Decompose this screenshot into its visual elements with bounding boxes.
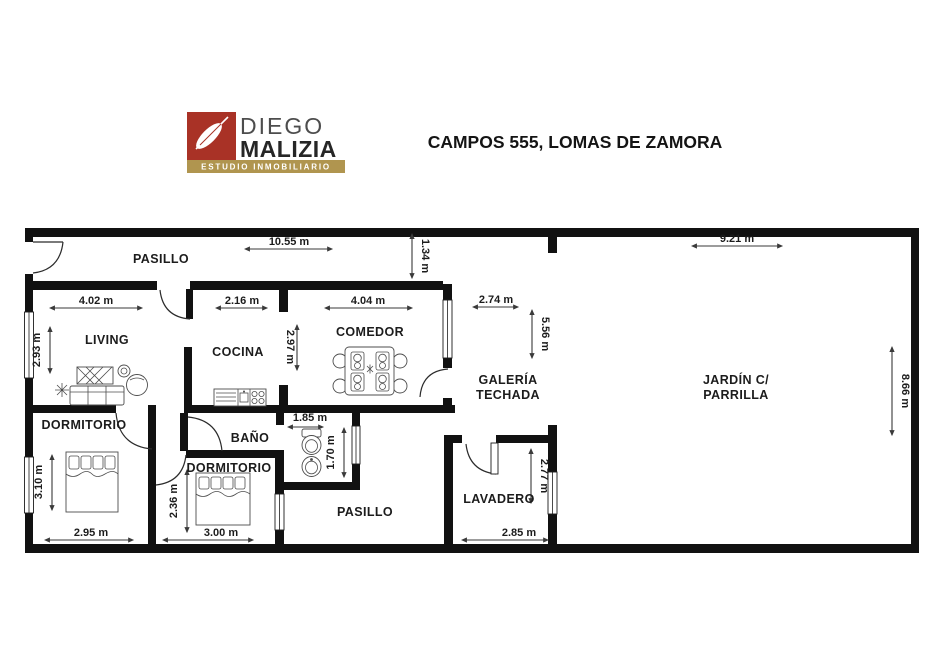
dimension-label: 4.02 m bbox=[79, 295, 113, 307]
room-label-living: LIVING bbox=[85, 333, 129, 347]
sofa bbox=[70, 386, 124, 405]
room-label-jardin-1: JARDÍN C/ bbox=[703, 372, 769, 387]
room-label-lavadero: LAVADERO bbox=[463, 492, 535, 506]
dimension-label: 2.36 m bbox=[168, 484, 180, 518]
dimension-label: 5.56 m bbox=[539, 317, 551, 351]
room-label-bano: BAÑO bbox=[231, 430, 269, 445]
dimension-label: 8.66 m bbox=[899, 374, 911, 408]
dimension-label: 2.97 m bbox=[284, 330, 296, 364]
room-label-pasillo-top: PASILLO bbox=[133, 252, 189, 266]
bed bbox=[196, 473, 250, 525]
dimension-label: 2.93 m bbox=[31, 333, 43, 367]
dimension-label: 1.85 m bbox=[293, 412, 327, 424]
door-arc bbox=[420, 369, 448, 397]
brand-tagline: ESTUDIO INMOBILIARIO bbox=[201, 163, 331, 172]
dimension-label: 1.70 m bbox=[325, 435, 337, 469]
door-arc bbox=[33, 242, 63, 273]
armchair bbox=[127, 375, 148, 396]
room-label-jardin-2: PARRILLA bbox=[703, 388, 768, 402]
bidet bbox=[302, 457, 321, 477]
room-label-dormitorio-1: DORMITORIO bbox=[41, 418, 126, 432]
dimension-label: 2.95 m bbox=[74, 527, 108, 539]
plant bbox=[55, 383, 69, 397]
room-label-comedor: COMEDOR bbox=[336, 325, 404, 339]
dimension-label: 10.55 m bbox=[269, 236, 310, 248]
dimension-label: 9.21 m bbox=[720, 233, 754, 245]
door-arc bbox=[188, 417, 222, 451]
dimension-label: 3.10 m bbox=[33, 465, 45, 499]
page-title: CAMPOS 555, LOMAS DE ZAMORA bbox=[428, 132, 723, 152]
room-label-galeria-2: TECHADA bbox=[476, 388, 540, 402]
door-arc bbox=[466, 443, 498, 474]
rug bbox=[77, 367, 113, 384]
door-arc bbox=[156, 455, 186, 485]
window bbox=[443, 300, 452, 358]
dimension-label: 4.04 m bbox=[351, 295, 385, 307]
dimension-label: 1.34 m bbox=[419, 239, 431, 273]
brand-name-line2: MALIZIA bbox=[240, 136, 337, 162]
toilet bbox=[302, 429, 321, 455]
door-arc bbox=[160, 290, 190, 319]
dimension-label: 2.16 m bbox=[225, 295, 259, 307]
dimension-label: 2.74 m bbox=[479, 294, 513, 306]
doors bbox=[33, 242, 498, 485]
room-label-dormitorio-2: DORMITORIO bbox=[186, 461, 271, 475]
window bbox=[352, 426, 360, 464]
dimension-label: 3.00 m bbox=[204, 527, 238, 539]
kitchen-counter bbox=[214, 389, 266, 406]
dining-table bbox=[333, 347, 407, 395]
dimension-label: 2.85 m bbox=[502, 527, 536, 539]
room-label-pasillo-bottom: PASILLO bbox=[337, 505, 393, 519]
brand-logo: DIEGO MALIZIA ESTUDIO INMOBILIARIO bbox=[187, 112, 345, 173]
room-label-galeria-1: GALERÍA bbox=[478, 372, 537, 387]
window bbox=[275, 494, 284, 530]
floorplan-canvas: DIEGO MALIZIA ESTUDIO INMOBILIARIO CAMPO… bbox=[0, 0, 948, 670]
side-table bbox=[118, 365, 130, 377]
bed bbox=[66, 452, 118, 512]
room-label-cocina: COCINA bbox=[212, 345, 264, 359]
dimension-label: 2.77 m bbox=[538, 459, 550, 493]
